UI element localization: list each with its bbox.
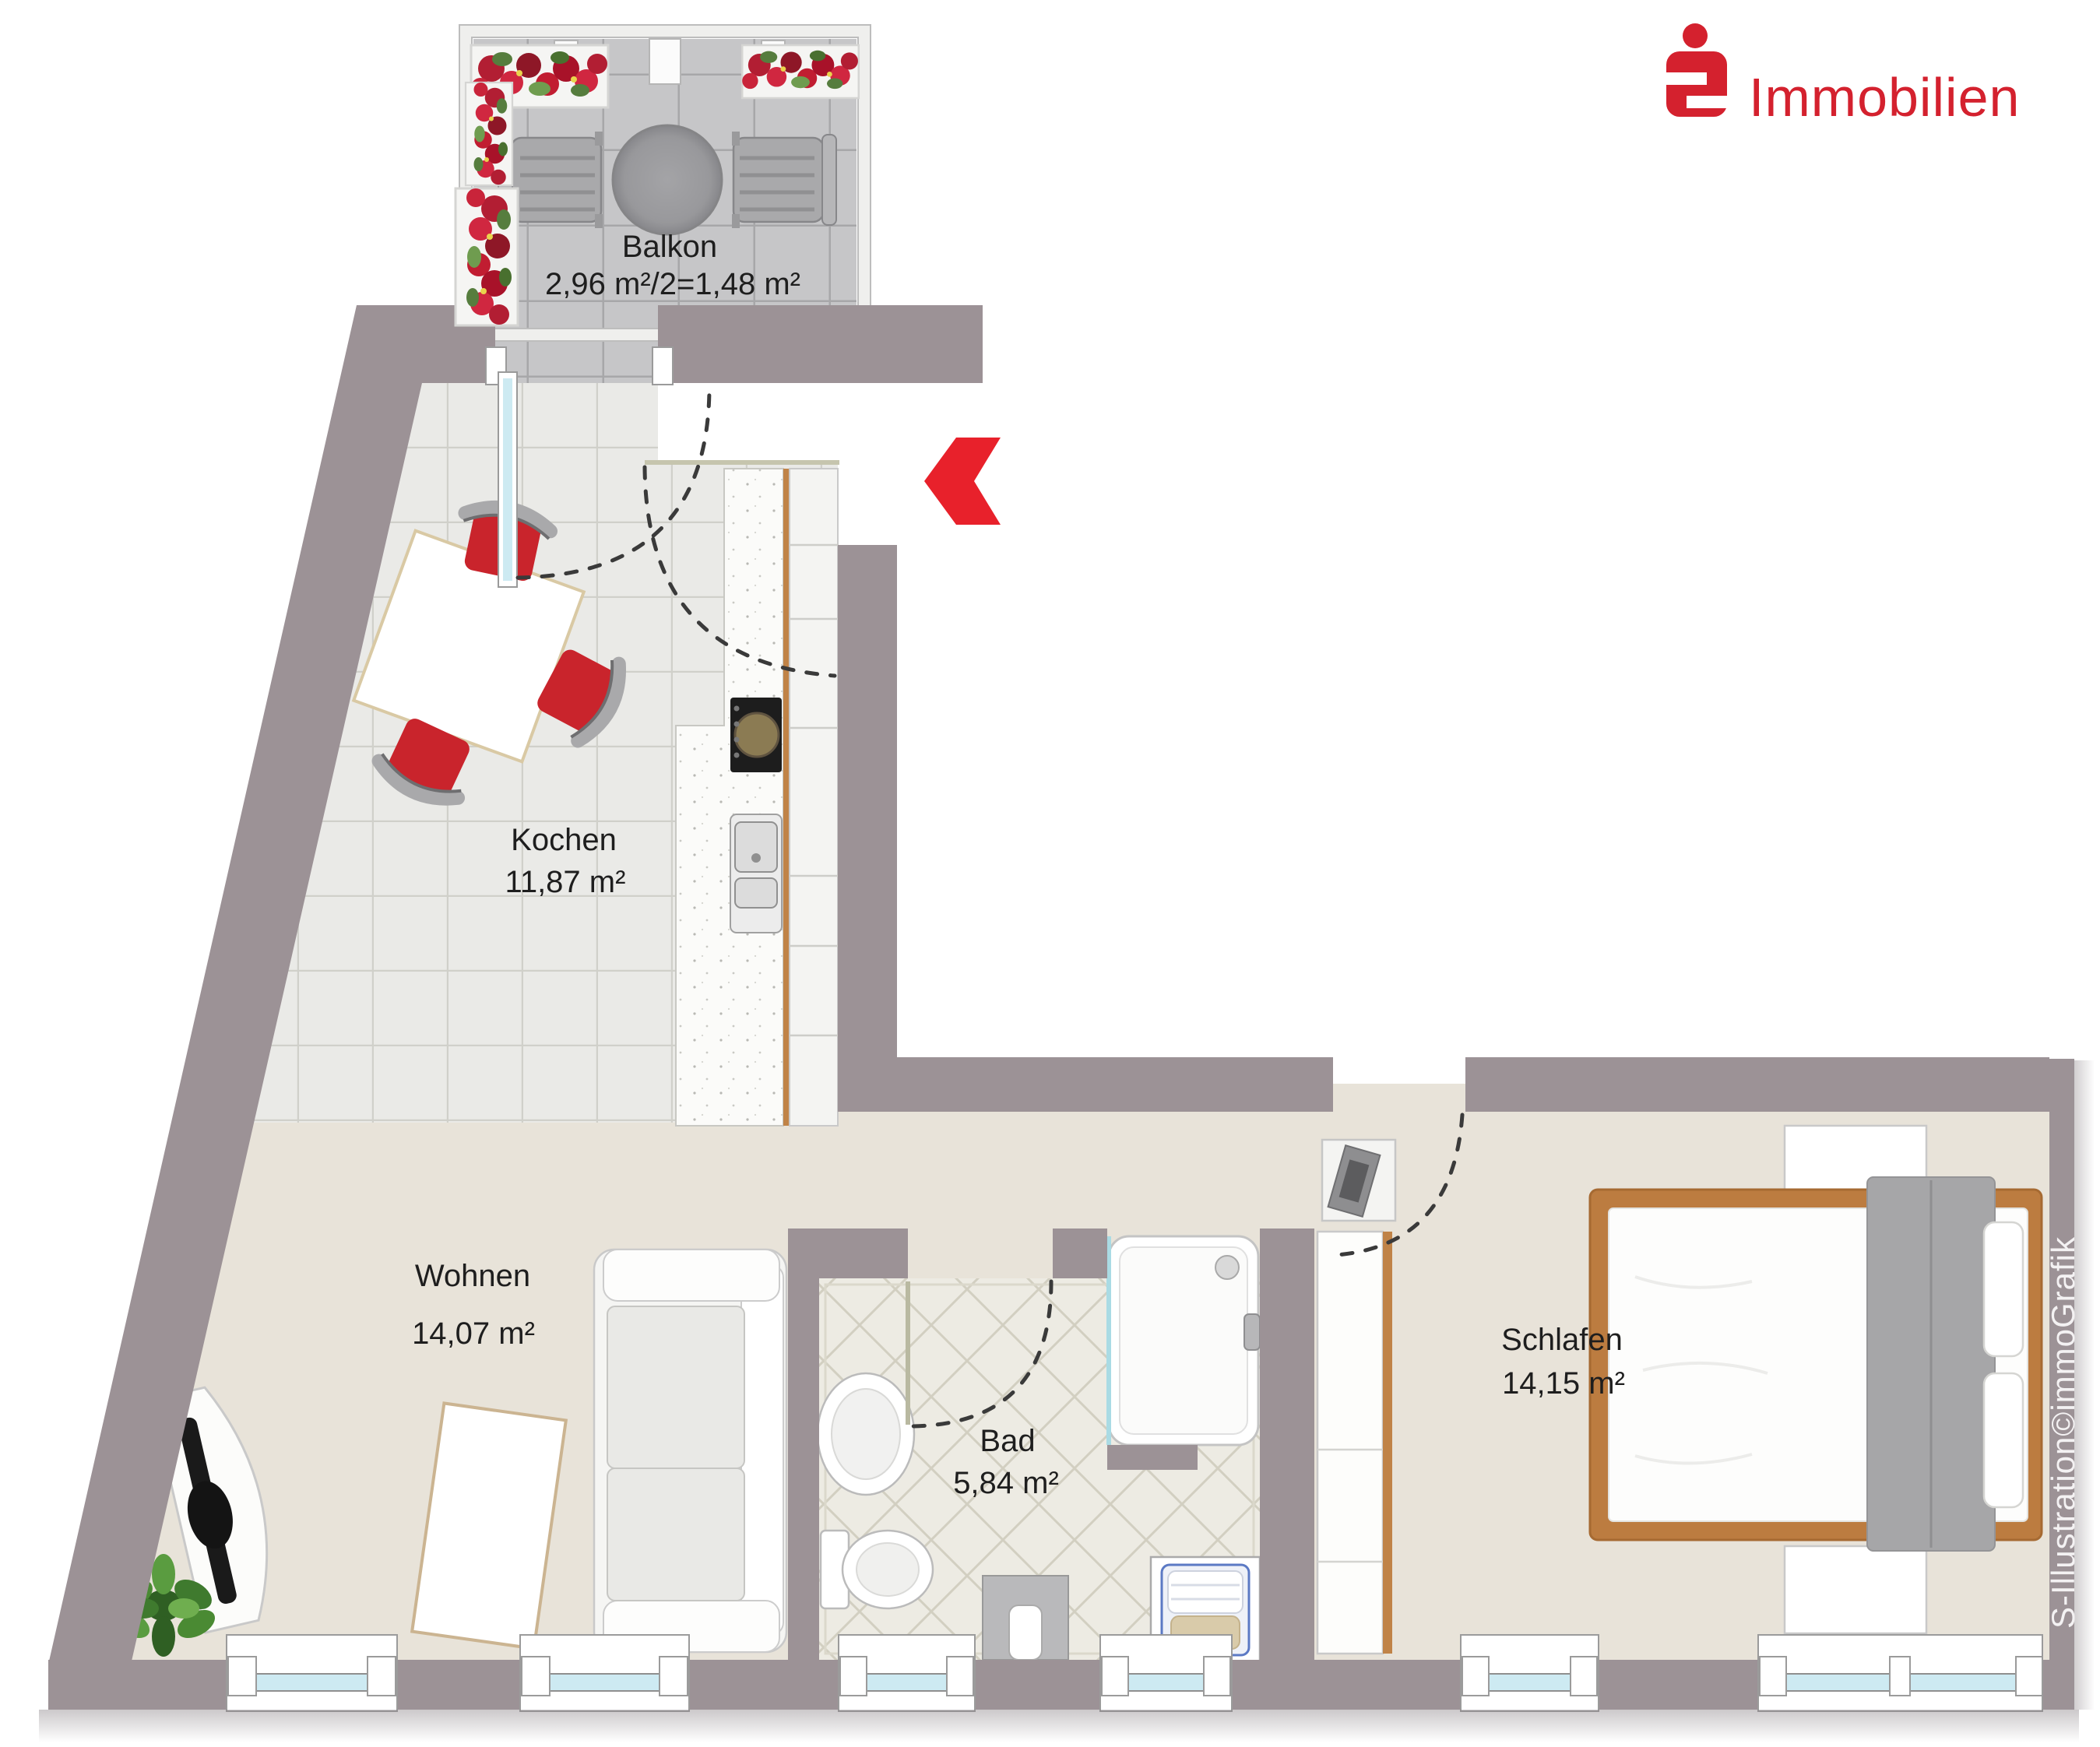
window	[520, 1635, 689, 1711]
wall-bath-right	[1260, 1229, 1314, 1660]
balcony-table-top	[627, 139, 708, 220]
area-label-schlafen: 14,15 m²	[1502, 1366, 1625, 1401]
wall-band-right	[1465, 1057, 2049, 1112]
pillow	[1984, 1222, 2023, 1356]
window	[839, 1635, 975, 1711]
floor-plan-svg: Balkon 2,96 m²/2=1,48 m² Kochen 11,87 m²…	[0, 0, 2100, 1747]
room-label-wohnen: Wohnen	[415, 1259, 530, 1293]
bed	[1590, 1177, 2042, 1551]
shower-faucet	[1244, 1314, 1260, 1350]
balcony-chair-right	[732, 132, 836, 228]
sofa-cushion	[607, 1468, 744, 1601]
wall-bath-left	[788, 1229, 819, 1660]
area-label-kochen: 11,87 m²	[505, 865, 626, 899]
window	[227, 1635, 397, 1711]
sofa-backrest	[741, 1265, 783, 1635]
toilet	[821, 1531, 933, 1608]
floor-plan-page: Balkon 2,96 m²/2=1,48 m² Kochen 11,87 m²…	[0, 0, 2100, 1747]
wall-under-shower	[1107, 1445, 1198, 1470]
area-label-wohnen: 14,07 m²	[412, 1316, 535, 1351]
wardrobe	[1317, 1232, 1392, 1654]
shower-drain	[1215, 1256, 1239, 1279]
towels	[1168, 1571, 1243, 1613]
wall-bath-top-left	[819, 1229, 908, 1278]
railing-post	[649, 39, 681, 84]
wall-top-right	[658, 305, 983, 383]
sofa-armrest	[603, 1250, 779, 1301]
cabinet-fronts	[790, 469, 838, 1126]
nightstand	[1785, 1546, 1926, 1633]
wall-band-left	[897, 1057, 1333, 1112]
stove	[730, 698, 782, 772]
counter-wood-edge	[783, 469, 790, 1126]
kitchen-sink	[730, 814, 782, 933]
wardrobe-wood-edge	[1383, 1232, 1392, 1654]
balcony-door	[498, 372, 517, 587]
sofa	[594, 1250, 786, 1652]
wall-kitchen-right	[838, 545, 897, 1112]
area-label-balkon: 2,96 m²/2=1,48 m²	[545, 267, 800, 301]
flower-box	[456, 188, 518, 325]
room-label-balkon: Balkon	[622, 230, 717, 264]
window-double	[1758, 1635, 2042, 1711]
room-label-schlafen: Schlafen	[1501, 1323, 1623, 1357]
pillow	[1984, 1373, 2023, 1507]
wall-shadow-bottom	[39, 1710, 2079, 1742]
window	[1100, 1635, 1232, 1711]
bedroom-door-gap-floor	[1333, 1084, 1465, 1112]
wall-bath-top-right	[1053, 1229, 1107, 1278]
credit-text: S-Illustration©immoGrafik	[2045, 1236, 2081, 1629]
door-jamb	[653, 347, 673, 385]
shower	[1109, 1236, 1260, 1445]
room-label-bad: Bad	[980, 1424, 1035, 1458]
room-label-kochen: Kochen	[511, 823, 617, 857]
sofa-cushion	[607, 1306, 744, 1468]
flower-box	[742, 45, 859, 98]
flower-box	[466, 83, 512, 185]
window	[1461, 1635, 1599, 1711]
logo-text: Immobilien	[1749, 67, 2020, 128]
pedestal	[983, 1576, 1068, 1660]
area-label-bad: 5,84 m²	[953, 1466, 1059, 1500]
